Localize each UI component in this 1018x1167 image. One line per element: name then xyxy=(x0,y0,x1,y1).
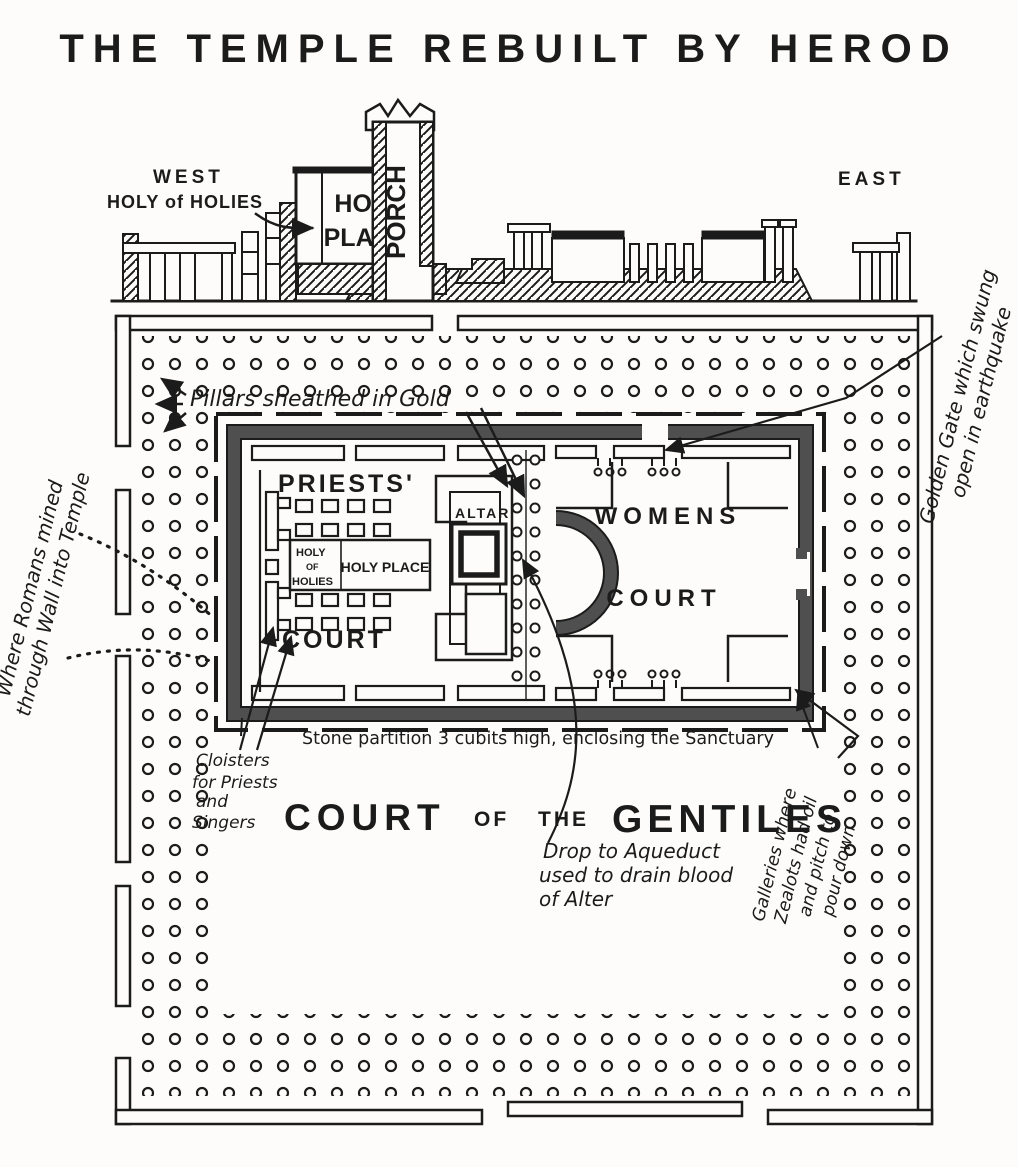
altar-label: ALTAR xyxy=(455,505,510,521)
gentiles-word-court: COURT xyxy=(284,797,446,838)
wall-bottom-2 xyxy=(508,1102,742,1116)
wall-bottom-1 xyxy=(116,1110,482,1124)
golden-gate-gap xyxy=(642,421,668,445)
porch-tower: PORCH xyxy=(366,100,434,301)
pillars-right xyxy=(840,336,912,1096)
altar-square-inner xyxy=(461,533,497,575)
stone-partition-tick xyxy=(241,718,242,736)
porch-label: PORCH xyxy=(381,165,411,259)
elevation-view: HOLY PLACE PORCH xyxy=(107,100,916,301)
wall-bottom-3 xyxy=(768,1110,932,1124)
west-colonnade xyxy=(123,234,235,301)
steps-mound xyxy=(456,259,504,283)
temple-diagram-page: THE TEMPLE REBUILT BY HEROD HOLY xyxy=(0,0,1018,1167)
pillars-bottom xyxy=(142,1014,912,1096)
east-gate-post-top xyxy=(796,548,807,559)
womens-label: WOMENS xyxy=(595,503,742,530)
sanctuary: PRIESTS' COURT HOLY OF HOLIES xyxy=(216,414,824,730)
holy-of-holies-elevation-label: HOLY of HOLIES xyxy=(107,192,263,212)
hoh-line1: HOLY xyxy=(296,547,326,559)
gentiles-word-the: THE xyxy=(538,808,589,831)
page-title: THE TEMPLE REBUILT BY HEROD xyxy=(59,27,958,71)
east-label: EAST xyxy=(838,169,905,190)
holy-place-plan-label: HOLY PLACE xyxy=(341,559,430,575)
wall-top-left xyxy=(116,316,432,330)
cloisters-label-4: Singers xyxy=(192,813,256,833)
wall-left-3 xyxy=(116,656,130,862)
pillars-left xyxy=(142,336,214,1096)
wall-top-right xyxy=(458,316,932,330)
gentiles-word-of: OF xyxy=(474,808,509,831)
aqueduct-label-1: Drop to Aqueduct xyxy=(543,839,721,863)
hoh-line3: HOLIES xyxy=(292,576,333,588)
temple-diagram-svg: THE TEMPLE REBUILT BY HEROD HOLY xyxy=(0,0,1018,1167)
priests-label: PRIESTS' xyxy=(278,470,415,498)
middle-colonnades xyxy=(508,220,796,282)
cloisters-label-1: Cloisters xyxy=(196,751,270,771)
east-colonnade xyxy=(853,233,910,301)
womens-court-label: COURT xyxy=(606,585,721,612)
wall-right xyxy=(918,316,932,1124)
wall-left-1 xyxy=(116,316,130,446)
aqueduct-label-3: of Alter xyxy=(539,887,614,911)
cloisters-label-3: and xyxy=(196,792,228,812)
altar-ramp xyxy=(466,594,506,654)
scaffold-towers xyxy=(242,213,282,301)
hoh-line2: OF xyxy=(306,562,319,572)
west-label: WEST xyxy=(153,167,224,188)
pillars-gold-label: Pillars sheathed in Gold xyxy=(190,387,451,412)
east-gate-post-bottom xyxy=(796,589,807,600)
stone-partition-label: Stone partition 3 cubits high, enclosing… xyxy=(302,729,774,749)
cloisters-label-2: for Priests xyxy=(192,773,278,793)
aqueduct-label-2: used to drain blood xyxy=(539,863,733,887)
wall-left-4 xyxy=(116,886,130,1006)
